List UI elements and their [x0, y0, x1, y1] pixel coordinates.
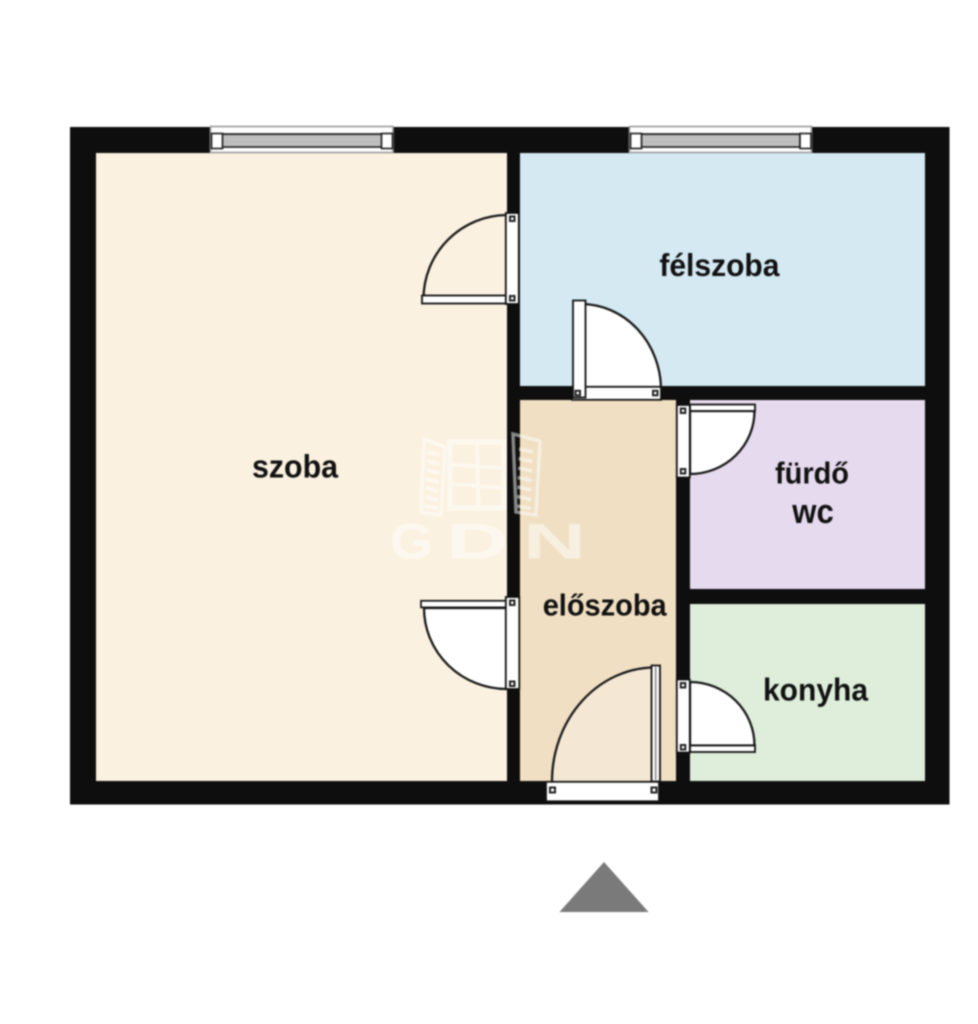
svg-text:szoba: szoba [252, 449, 338, 485]
svg-text:wc: wc [791, 493, 833, 531]
svg-text:konyha: konyha [763, 672, 868, 708]
svg-text:előszoba: előszoba [543, 589, 668, 623]
svg-text:G: G [390, 514, 433, 570]
svg-text:félszoba: félszoba [659, 247, 779, 283]
svg-text:D: D [447, 514, 509, 570]
svg-text:N: N [523, 514, 586, 570]
svg-text:fürdő: fürdő [775, 457, 849, 491]
